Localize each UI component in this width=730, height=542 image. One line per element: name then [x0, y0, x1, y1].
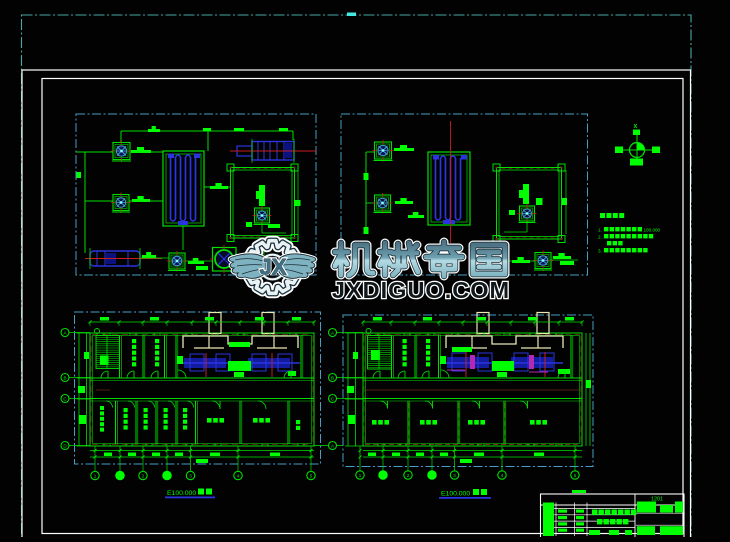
svg-text:A: A — [331, 443, 334, 448]
svg-text:E100.000: E100.000 — [441, 491, 470, 498]
svg-text:X: X — [634, 124, 638, 130]
svg-text:A: A — [63, 330, 66, 335]
svg-text:2.: 2. — [598, 235, 602, 240]
svg-text:JX: JX — [260, 255, 287, 280]
svg-text:E100.000: E100.000 — [167, 490, 196, 497]
svg-text:100.000: 100.000 — [644, 228, 661, 233]
svg-text:3.: 3. — [598, 249, 602, 254]
svg-text:B: B — [331, 375, 334, 380]
svg-text:JXDIGUO.COM: JXDIGUO.COM — [332, 277, 510, 303]
svg-text:A: A — [331, 330, 334, 335]
svg-text:1.: 1. — [598, 228, 602, 233]
svg-text:B: B — [63, 375, 66, 380]
